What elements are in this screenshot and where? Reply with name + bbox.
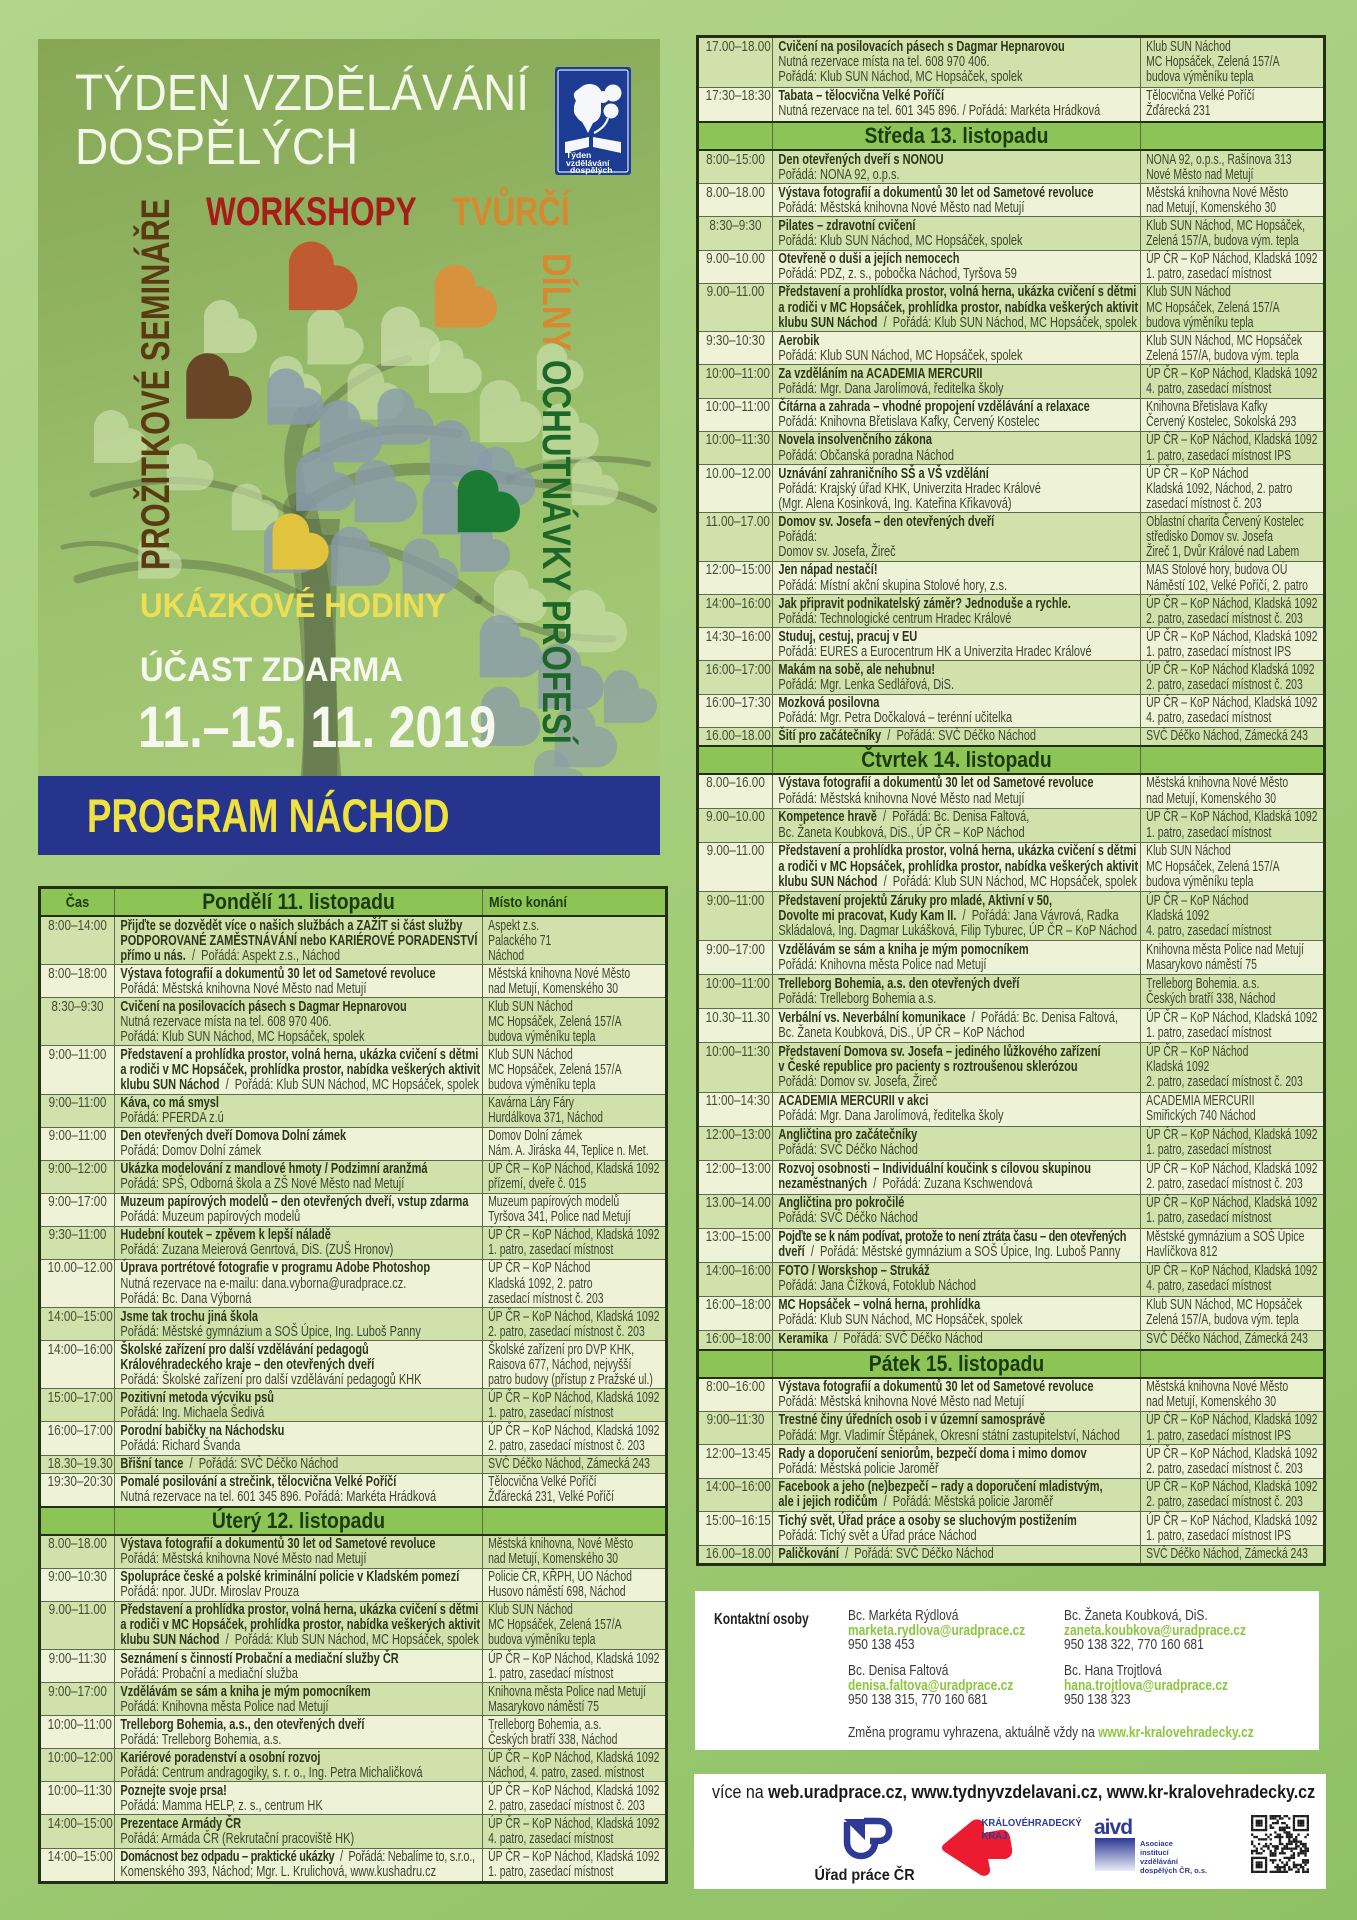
svg-text:KRÁLOVÉHRADECKÝ: KRÁLOVÉHRADECKÝ [982, 1817, 1083, 1829]
svg-text:institucí: institucí [1140, 1848, 1170, 1857]
svg-text:vzdělávání: vzdělávání [1140, 1857, 1179, 1866]
svg-text:KRAJ: KRAJ [982, 1831, 1008, 1842]
svg-text:aivd: aivd [1094, 1818, 1132, 1839]
svg-text:Asociace: Asociace [1140, 1839, 1173, 1848]
svg-text:dospělých: dospělých [570, 165, 613, 175]
svg-text:dospělých ČR, o.s.: dospělých ČR, o.s. [1140, 1866, 1207, 1874]
